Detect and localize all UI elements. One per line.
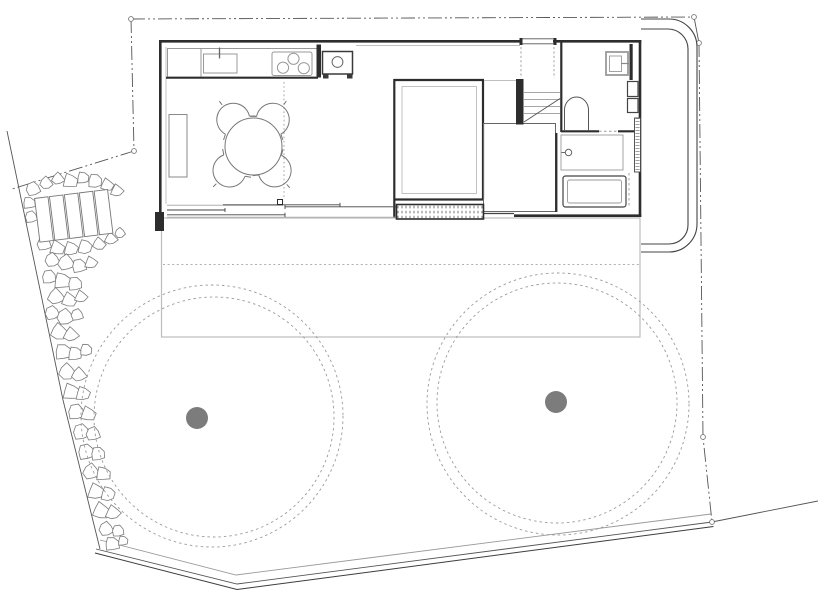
burner — [288, 53, 299, 64]
door-handle — [278, 200, 283, 205]
entry-jamb — [554, 38, 557, 45]
rock — [55, 273, 70, 288]
chair-back — [258, 154, 298, 193]
rock — [69, 277, 82, 290]
survey-marker — [701, 435, 706, 440]
rock — [52, 172, 66, 184]
burner — [298, 63, 309, 74]
boundary-west-upper — [131, 19, 134, 151]
wall-sw-stub — [155, 212, 164, 231]
burner — [277, 62, 288, 73]
bedroom-lining — [402, 87, 477, 194]
rock — [101, 487, 115, 501]
dining-area — [169, 82, 305, 201]
wc-wall-right — [630, 44, 633, 80]
floor-plan-svg — [0, 0, 818, 608]
wall-shelf — [628, 82, 639, 97]
rock — [71, 309, 83, 321]
survey-marker — [710, 520, 715, 525]
vanity-counter — [561, 135, 623, 170]
rock — [89, 174, 102, 187]
rock — [63, 327, 79, 341]
unit-foot — [347, 74, 353, 79]
chair — [203, 89, 255, 140]
chair — [250, 89, 302, 140]
tree-canopy-outer — [81, 285, 343, 547]
rock — [24, 198, 36, 209]
wc-room — [561, 41, 641, 172]
perimeter-curb — [95, 514, 714, 590]
rock — [99, 521, 114, 535]
entry-jamb — [520, 38, 523, 45]
rock — [105, 505, 121, 519]
rock — [58, 254, 75, 270]
rock — [93, 237, 107, 249]
bathroom — [556, 133, 629, 212]
tree-trunk — [545, 391, 567, 413]
curb-inner-line — [100, 514, 711, 575]
dining-table — [225, 118, 282, 175]
rock — [40, 176, 53, 188]
stair-wall — [516, 79, 524, 125]
vent-grille — [635, 118, 641, 172]
property-boundary — [7, 15, 818, 549]
rock — [119, 536, 128, 545]
boundary-east — [699, 43, 712, 522]
curve-inner — [641, 29, 688, 244]
curve-outer — [641, 19, 697, 252]
kitchen-sink — [204, 54, 238, 73]
driveway-curve — [641, 19, 697, 252]
chair-ticks — [253, 149, 305, 201]
rock — [86, 427, 100, 441]
rock — [26, 182, 41, 196]
site-plan-canvas — [0, 0, 818, 608]
rock — [115, 227, 126, 237]
deck-outline — [162, 218, 641, 337]
rock — [50, 240, 65, 254]
boundary-south-continuation — [712, 501, 818, 522]
chair — [253, 149, 305, 201]
rock — [72, 367, 88, 381]
fridge-unit — [168, 49, 202, 78]
sliding-doors — [167, 200, 397, 218]
chair-back — [206, 154, 246, 194]
rock — [63, 173, 78, 186]
boundary-north — [131, 17, 694, 19]
floor-grille — [397, 205, 484, 220]
toilet — [565, 97, 589, 131]
rock — [101, 178, 115, 190]
chair-ticks — [203, 89, 255, 140]
survey-marker — [129, 17, 134, 22]
counter-end-panel — [317, 45, 322, 78]
survey-marker — [692, 15, 697, 20]
curb-outer-line — [95, 527, 714, 590]
unit-foot — [323, 74, 329, 79]
rock — [81, 344, 92, 355]
drawing-root — [7, 15, 818, 590]
survey-marker — [132, 149, 137, 154]
rock — [97, 467, 110, 480]
tatami-platform — [484, 124, 556, 212]
rock — [78, 172, 89, 183]
rock — [92, 447, 105, 460]
rock — [78, 240, 92, 254]
wc-basin-inner — [610, 56, 622, 72]
utility-basin — [332, 57, 343, 68]
rock — [25, 211, 37, 223]
tree-right — [427, 273, 689, 535]
kitchen — [166, 45, 353, 79]
tree-canopy-inner — [94, 297, 334, 537]
chair-ticks — [199, 149, 251, 201]
deck — [162, 218, 641, 337]
rock — [43, 270, 56, 283]
rock — [69, 347, 82, 360]
rock — [113, 525, 124, 536]
bathtub-outer — [563, 176, 626, 207]
garden-steps — [35, 189, 113, 242]
rock — [85, 256, 98, 268]
tree-left — [81, 285, 343, 547]
chair-ticks — [250, 89, 302, 140]
stair-hall — [516, 47, 560, 125]
wall-bench — [169, 115, 187, 178]
vanity-faucet — [565, 149, 571, 155]
stair-break-line — [524, 99, 560, 123]
bathtub-inner — [568, 180, 622, 203]
rock — [64, 242, 78, 255]
utility-unit — [323, 52, 353, 75]
rock — [75, 290, 89, 302]
chair — [199, 149, 251, 201]
tree-trunk — [186, 407, 208, 429]
rock — [106, 538, 119, 551]
wall-shelf — [628, 99, 639, 113]
